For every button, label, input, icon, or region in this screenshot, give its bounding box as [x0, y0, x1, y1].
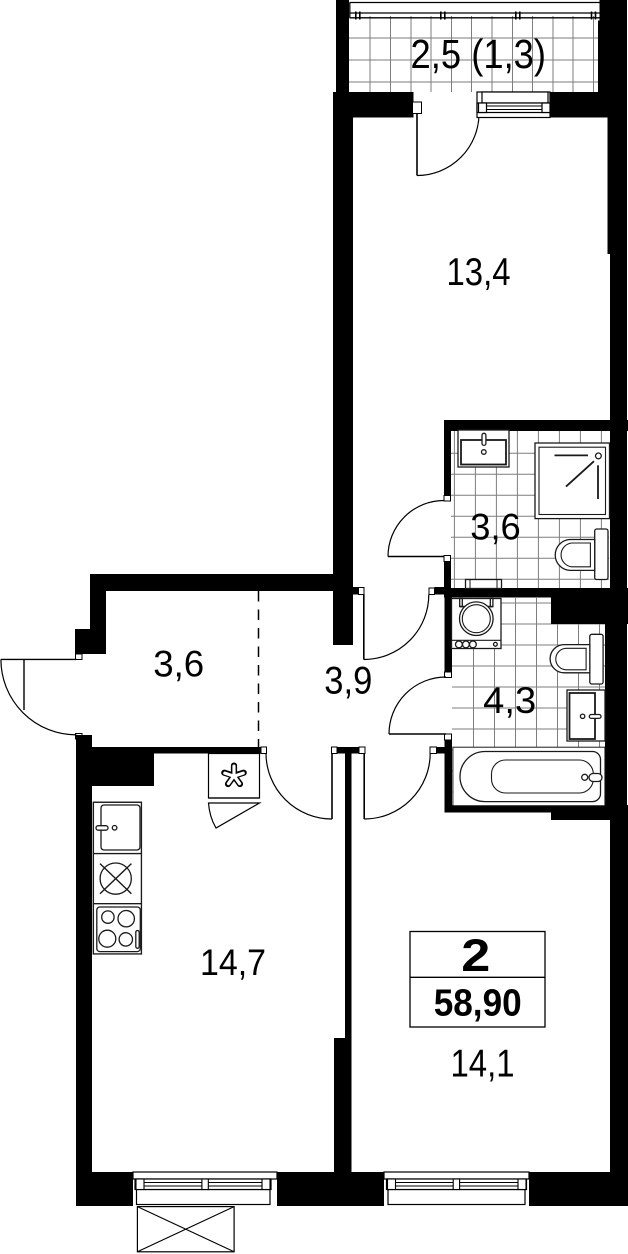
svg-text:14,7: 14,7	[200, 942, 266, 983]
svg-text:2,5 (1,3): 2,5 (1,3)	[411, 31, 547, 77]
svg-text:3,9: 3,9	[324, 660, 372, 703]
svg-text:2: 2	[461, 931, 490, 981]
svg-text:3,6: 3,6	[470, 507, 521, 548]
svg-text:4,3: 4,3	[483, 680, 536, 721]
svg-text:58,90: 58,90	[434, 983, 522, 1025]
svg-text:13,4: 13,4	[447, 251, 511, 294]
svg-text:14,1: 14,1	[451, 1043, 515, 1086]
svg-text:3,6: 3,6	[153, 644, 204, 685]
